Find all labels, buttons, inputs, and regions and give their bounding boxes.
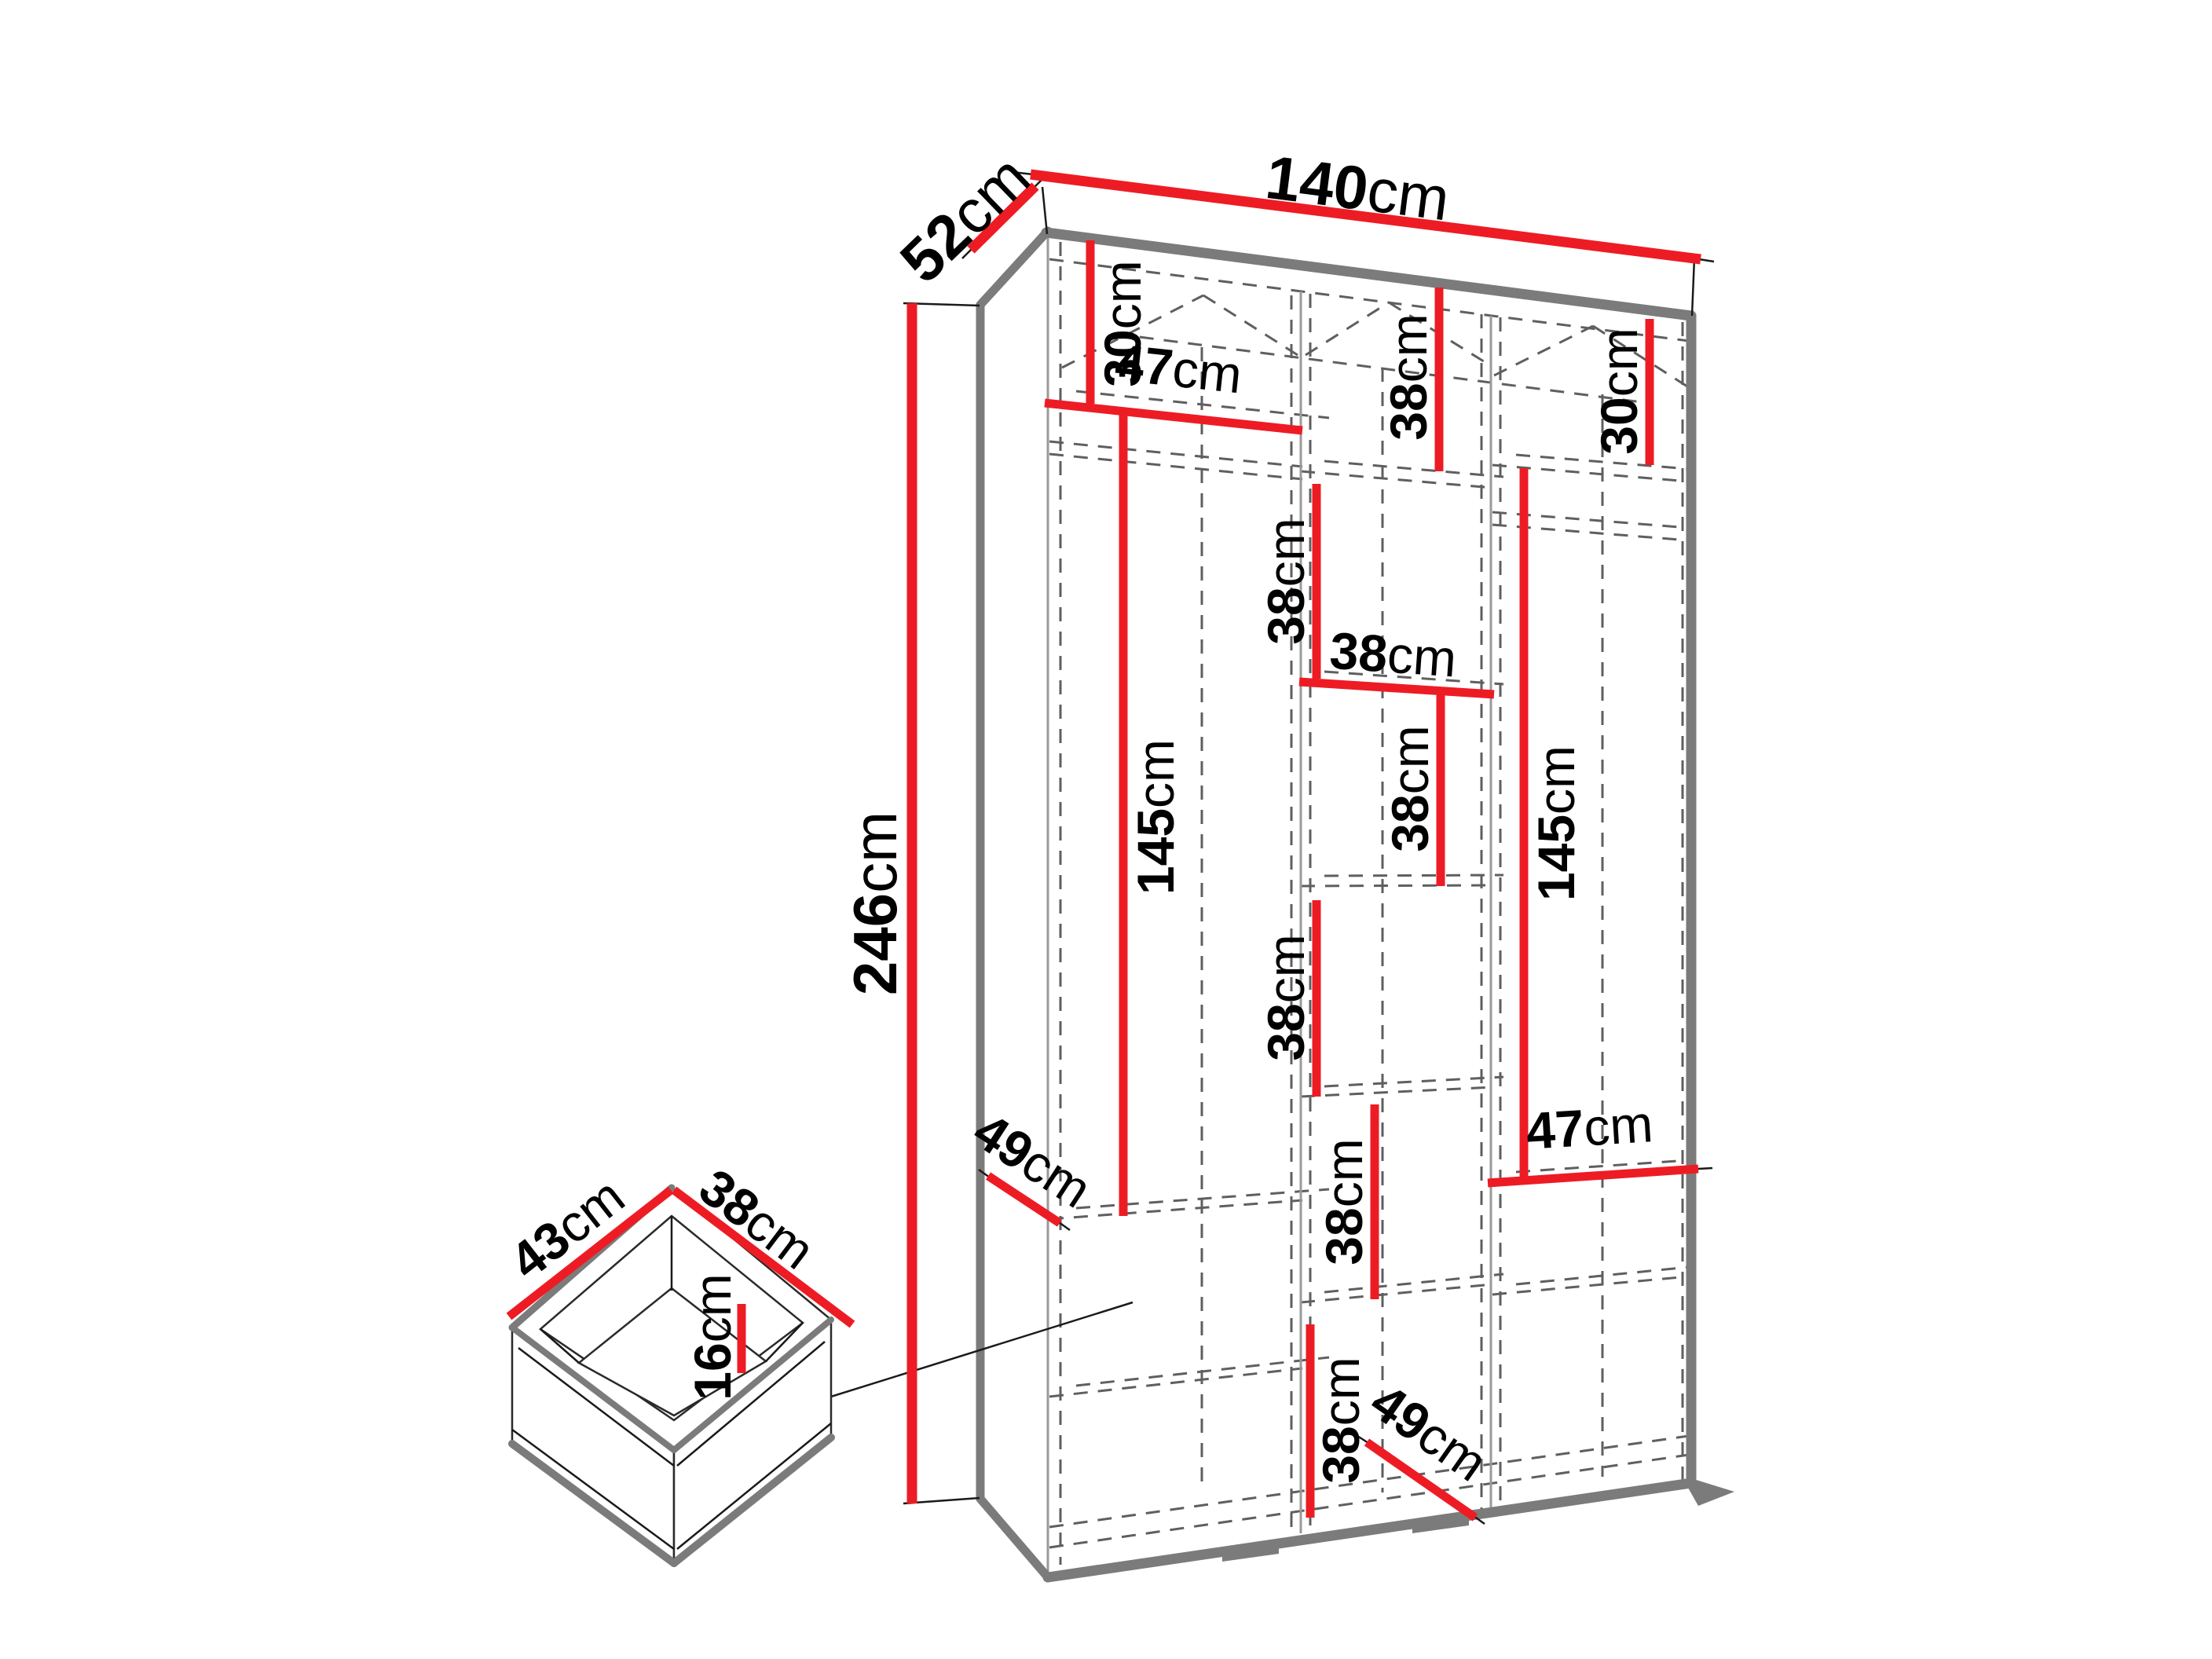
- label-mid-38-2: 38cm: [1257, 518, 1315, 644]
- witness-line: [1698, 1168, 1712, 1169]
- label-right-30: 30cm: [1590, 328, 1648, 454]
- label-right-47: 47cm: [1525, 1094, 1655, 1160]
- rail-edge: [1049, 441, 1302, 467]
- shelf-edge: [1301, 885, 1492, 886]
- label-mid-38-6: 38cm: [1312, 1357, 1370, 1483]
- label-mid-38-3: 38cm: [1381, 725, 1439, 851]
- label-base-49: 49cm: [1361, 1372, 1498, 1492]
- shelf-edge: [1301, 1087, 1492, 1097]
- witness-line: [1699, 259, 1714, 262]
- hidden-edge: [1306, 302, 1389, 355]
- witness-line: [1042, 187, 1047, 234]
- shelf-edge: [1049, 1368, 1302, 1397]
- bottom-right-corner-wedge: [1688, 1478, 1734, 1506]
- label-left-145: 145cm: [1126, 739, 1185, 895]
- rail-edge: [1049, 454, 1302, 479]
- furniture-dimension-diagram: 140cm 52cm 246cm 30cm 47cm 145cm 49cm 38…: [0, 0, 2212, 1659]
- shelf-edge: [1324, 1274, 1503, 1292]
- label-mid-38-1: 38cm: [1379, 313, 1437, 440]
- label-mid-38-width: 38cm: [1328, 621, 1459, 688]
- label-drawer-16: 16cm: [683, 1273, 742, 1400]
- shelf-edge: [1324, 1077, 1503, 1086]
- label-right-145: 145cm: [1527, 745, 1585, 901]
- left-panel-bottom-edge: [980, 1499, 1048, 1577]
- front-bottom-edge: [1048, 1483, 1691, 1577]
- shelf-edge: [1301, 1284, 1492, 1302]
- witness-line: [1692, 258, 1694, 316]
- label-width-140: 140cm: [1262, 142, 1453, 234]
- label-height-246: 246cm: [840, 811, 910, 995]
- wardrobe-diagram-canvas: 140cm 52cm 246cm 30cm 47cm 145cm 49cm 38…: [0, 0, 2212, 1659]
- label-mid-38-4: 38cm: [1257, 934, 1315, 1060]
- hidden-edge: [1494, 326, 1593, 375]
- shelf-edge: [1301, 471, 1492, 488]
- label-mid-38-5: 38cm: [1315, 1138, 1373, 1265]
- shelf-edge: [1492, 1276, 1689, 1295]
- dimension-line-left-47: [1045, 403, 1302, 430]
- shelf-edge: [1324, 875, 1503, 876]
- shelf-edge: [1324, 461, 1503, 477]
- shelf-edge: [1049, 1200, 1302, 1219]
- label-depth-52: 52cm: [887, 142, 1042, 296]
- label-left-47: 47cm: [1112, 333, 1244, 404]
